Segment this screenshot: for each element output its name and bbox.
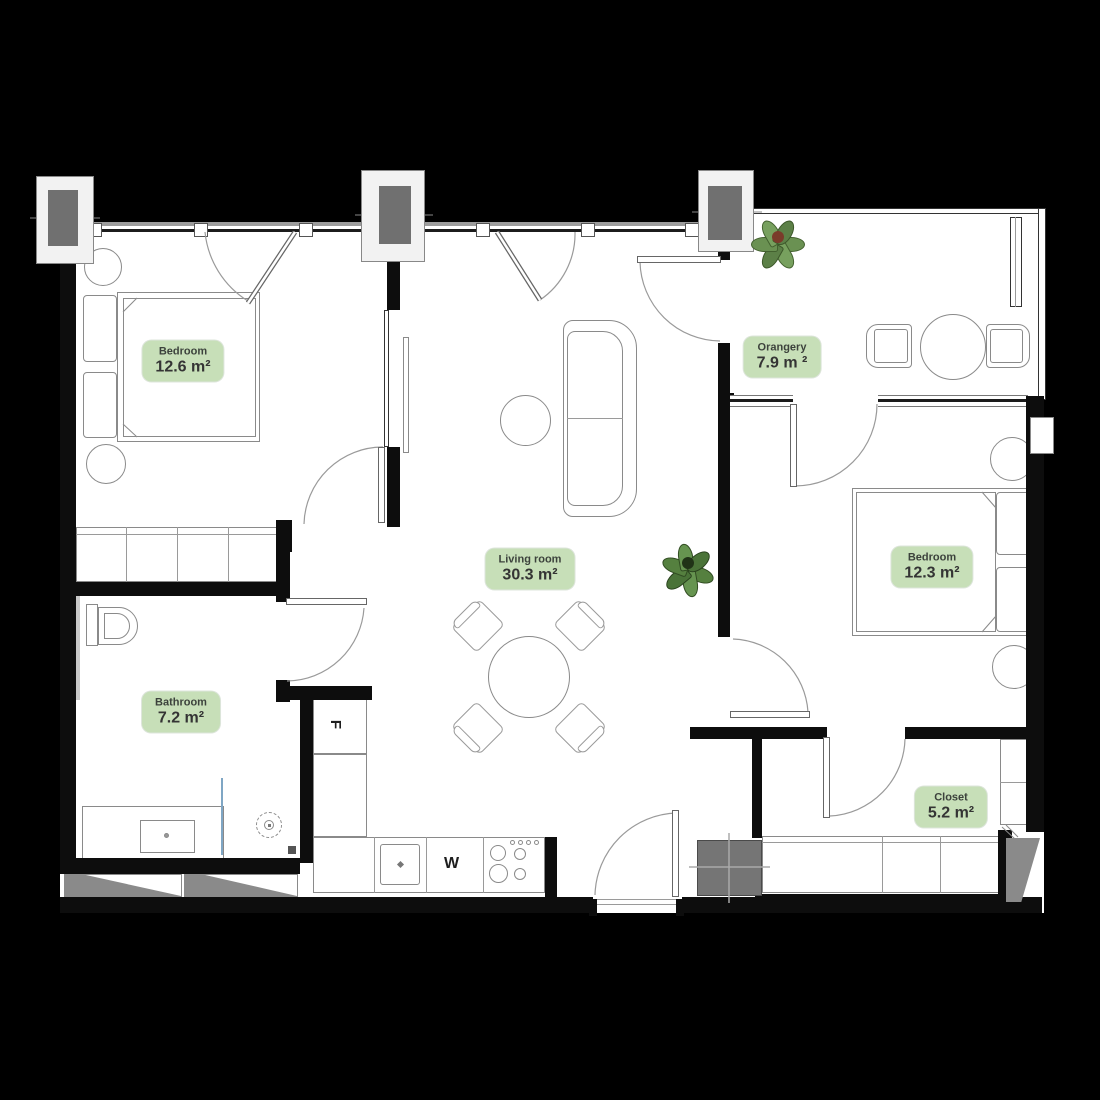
fridge-label: F <box>327 720 344 729</box>
bed-1-pillow-bottom <box>83 372 117 438</box>
wall <box>905 727 1038 739</box>
stove-burner <box>490 845 506 861</box>
window-band <box>878 395 1028 407</box>
orangery-wall-right <box>1038 208 1046 400</box>
closet-wardrobe-bottom <box>762 836 1000 893</box>
hatch-panel <box>184 874 298 897</box>
room-name: Bedroom <box>904 552 959 565</box>
room-name: Closet <box>928 792 974 805</box>
pouf <box>500 395 551 446</box>
room-name: Orangery <box>757 342 808 355</box>
wall <box>1026 396 1044 832</box>
stove-knob <box>518 840 523 845</box>
door-leaf <box>672 810 679 897</box>
door-leaf <box>378 447 385 523</box>
stove-burner <box>489 864 508 883</box>
room-label-bedroom-2: Bedroom 12.3 m² <box>891 547 972 588</box>
shower-glass <box>221 778 223 855</box>
hatch-panel <box>64 874 182 897</box>
door-leaf <box>823 737 830 818</box>
stove-knob <box>534 840 539 845</box>
room-label-orangery: Orangery 7.9 m ² <box>744 337 821 378</box>
wall <box>718 343 730 637</box>
wall <box>545 837 557 900</box>
wall-unit <box>1030 417 1054 454</box>
wall <box>300 700 313 863</box>
toilet-tank <box>86 604 98 646</box>
nightstand <box>86 444 126 484</box>
room-area: 7.9 m ² <box>757 355 808 373</box>
room-name: Bedroom <box>155 346 210 359</box>
wall <box>752 739 762 838</box>
washer-label: W <box>444 855 459 873</box>
room-area: 30.3 m² <box>499 567 562 585</box>
room-label-bathroom: Bathroom 7.2 m² <box>142 692 220 733</box>
wall <box>755 894 1008 912</box>
glass-partition <box>384 310 389 447</box>
floor-plan: F W <box>0 0 1100 1100</box>
room-area: 5.2 m² <box>928 805 974 823</box>
door-leaf <box>790 404 797 487</box>
room-label-living-room: Living room 30.3 m² <box>486 549 575 590</box>
door-leaf <box>637 256 721 263</box>
room-area: 12.6 m² <box>155 359 210 377</box>
room-area: 12.3 m² <box>904 565 959 583</box>
stove-knob <box>526 840 531 845</box>
door-leaf <box>286 598 367 605</box>
room-label-closet: Closet 5.2 m² <box>915 787 987 828</box>
stove-burner <box>514 868 526 880</box>
kitchen-counter <box>313 837 545 893</box>
wall <box>60 582 290 596</box>
wall <box>690 727 827 739</box>
wall <box>387 447 400 527</box>
orangery-glazing-stack <box>1010 217 1022 307</box>
shaft <box>697 840 762 896</box>
dining-table <box>488 636 570 718</box>
room-name: Living room <box>499 554 562 567</box>
tv-console <box>403 337 409 453</box>
wall <box>276 548 290 602</box>
wall <box>60 858 300 874</box>
bed-1-pillow-top <box>83 295 117 362</box>
wall <box>60 222 76 874</box>
stove-burner <box>514 848 526 860</box>
room-label-bedroom-1: Bedroom 12.6 m² <box>142 341 223 382</box>
kitchen-tall-cabinet <box>313 754 367 837</box>
room-area: 7.2 m² <box>155 710 207 728</box>
orangery-table <box>920 314 986 380</box>
door-leaf <box>730 711 810 718</box>
wall <box>60 897 593 913</box>
wall <box>276 686 372 700</box>
window-band <box>730 395 793 407</box>
stove-knob <box>510 840 515 845</box>
orangery-wall-top <box>752 208 1044 214</box>
room-name: Bathroom <box>155 697 207 710</box>
